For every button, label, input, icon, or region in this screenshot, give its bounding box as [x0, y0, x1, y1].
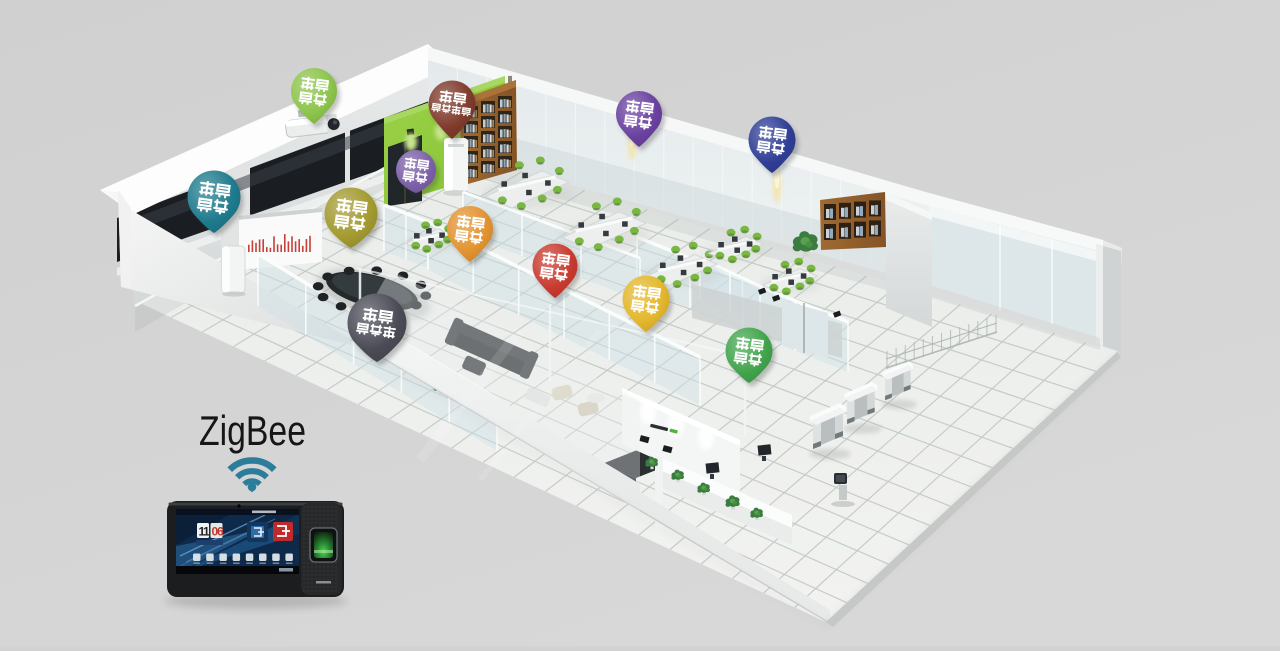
svg-text:1: 1	[203, 525, 210, 539]
svg-text:ZigBee: ZigBee	[199, 407, 306, 454]
svg-text:6: 6	[217, 525, 224, 539]
